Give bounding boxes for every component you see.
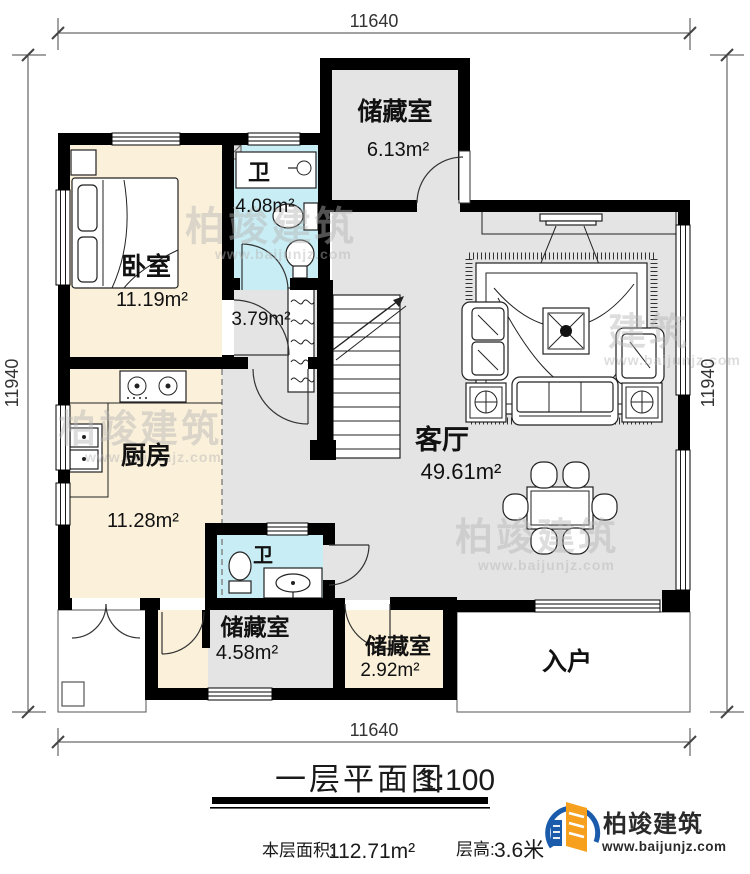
title-underline-thin — [210, 807, 490, 809]
title-block: 一层平面图 1:100 本层面积: 112.71m² 层高: 3.6米 — [210, 762, 544, 863]
dining-chair — [563, 462, 589, 488]
dim-left: 11940 — [2, 359, 22, 408]
floor-height-label: 层高: — [456, 840, 495, 859]
room-living-label: 客厅 — [415, 424, 469, 455]
nightstand — [71, 150, 96, 175]
svg-text:柏竣建筑: 柏竣建筑 — [455, 517, 619, 559]
tv — [540, 214, 602, 221]
floor-height-value: 3.6米 — [494, 839, 544, 862]
room-bedroom-area: 11.19m² — [116, 289, 188, 311]
floor-area-value: 112.71m² — [328, 840, 415, 863]
svg-text:www.baijunjz.com: www.baijunjz.com — [477, 557, 615, 573]
brand-logo: 柏竣建筑 www.baijunjz.com — [548, 802, 727, 854]
pillow — [78, 237, 97, 282]
room-bath2-label: 卫 — [253, 545, 273, 567]
corridor-radiator — [288, 288, 314, 392]
room-storage-top-area: 6.13m² — [367, 139, 430, 161]
room-kitchen-area: 11.28m² — [107, 510, 179, 532]
room-entry-label: 入户 — [542, 647, 592, 676]
title-underline-thick — [212, 797, 488, 804]
room-storage-mid-label: 储藏室 — [365, 634, 431, 659]
plan-scale: 1:100 — [420, 764, 495, 797]
logo-url: www.baijunjz.com — [601, 839, 727, 854]
stove — [120, 371, 186, 402]
room-corridor-area: 3.79m² — [231, 309, 290, 330]
room-bedroom-label: 卧室 — [121, 252, 171, 281]
floorplan-page: 柏竣建筑 www.baijunjz.com 柏竣建筑 www.baijunjz.… — [0, 0, 750, 874]
svg-text:建筑: 建筑 — [608, 312, 690, 354]
room-bath1-area: 4.08m² — [235, 196, 294, 217]
dim-bottom: 11640 — [350, 720, 399, 740]
dim-right: 11940 — [698, 359, 718, 408]
room-kitchen-label: 厨房 — [121, 441, 171, 470]
toilet-base — [229, 581, 251, 593]
pillow — [78, 185, 97, 231]
toilet-bowl — [229, 552, 251, 580]
svg-text:www.baijunjz.com: www.baijunjz.com — [603, 352, 741, 368]
room-storage-left-area: 4.58m² — [216, 642, 279, 664]
floorplan-drawing: 柏竣建筑 www.baijunjz.com 柏竣建筑 www.baijunjz.… — [0, 0, 750, 874]
room-bath1-label: 卫 — [248, 160, 270, 185]
dim-top: 11640 — [350, 11, 399, 31]
dining-chair — [531, 462, 557, 488]
room-living-area: 49.61m² — [421, 459, 502, 484]
svg-text:www.baijunjz.com: www.baijunjz.com — [214, 246, 352, 262]
logo-name: 柏竣建筑 — [603, 810, 703, 838]
room-storage-top-label: 储藏室 — [357, 97, 432, 126]
room-storage-left-label: 储藏室 — [221, 614, 290, 640]
room-storage-mid-area: 2.92m² — [360, 660, 419, 681]
floor-area-label: 本层面积: — [262, 841, 335, 860]
stairs — [330, 295, 406, 458]
